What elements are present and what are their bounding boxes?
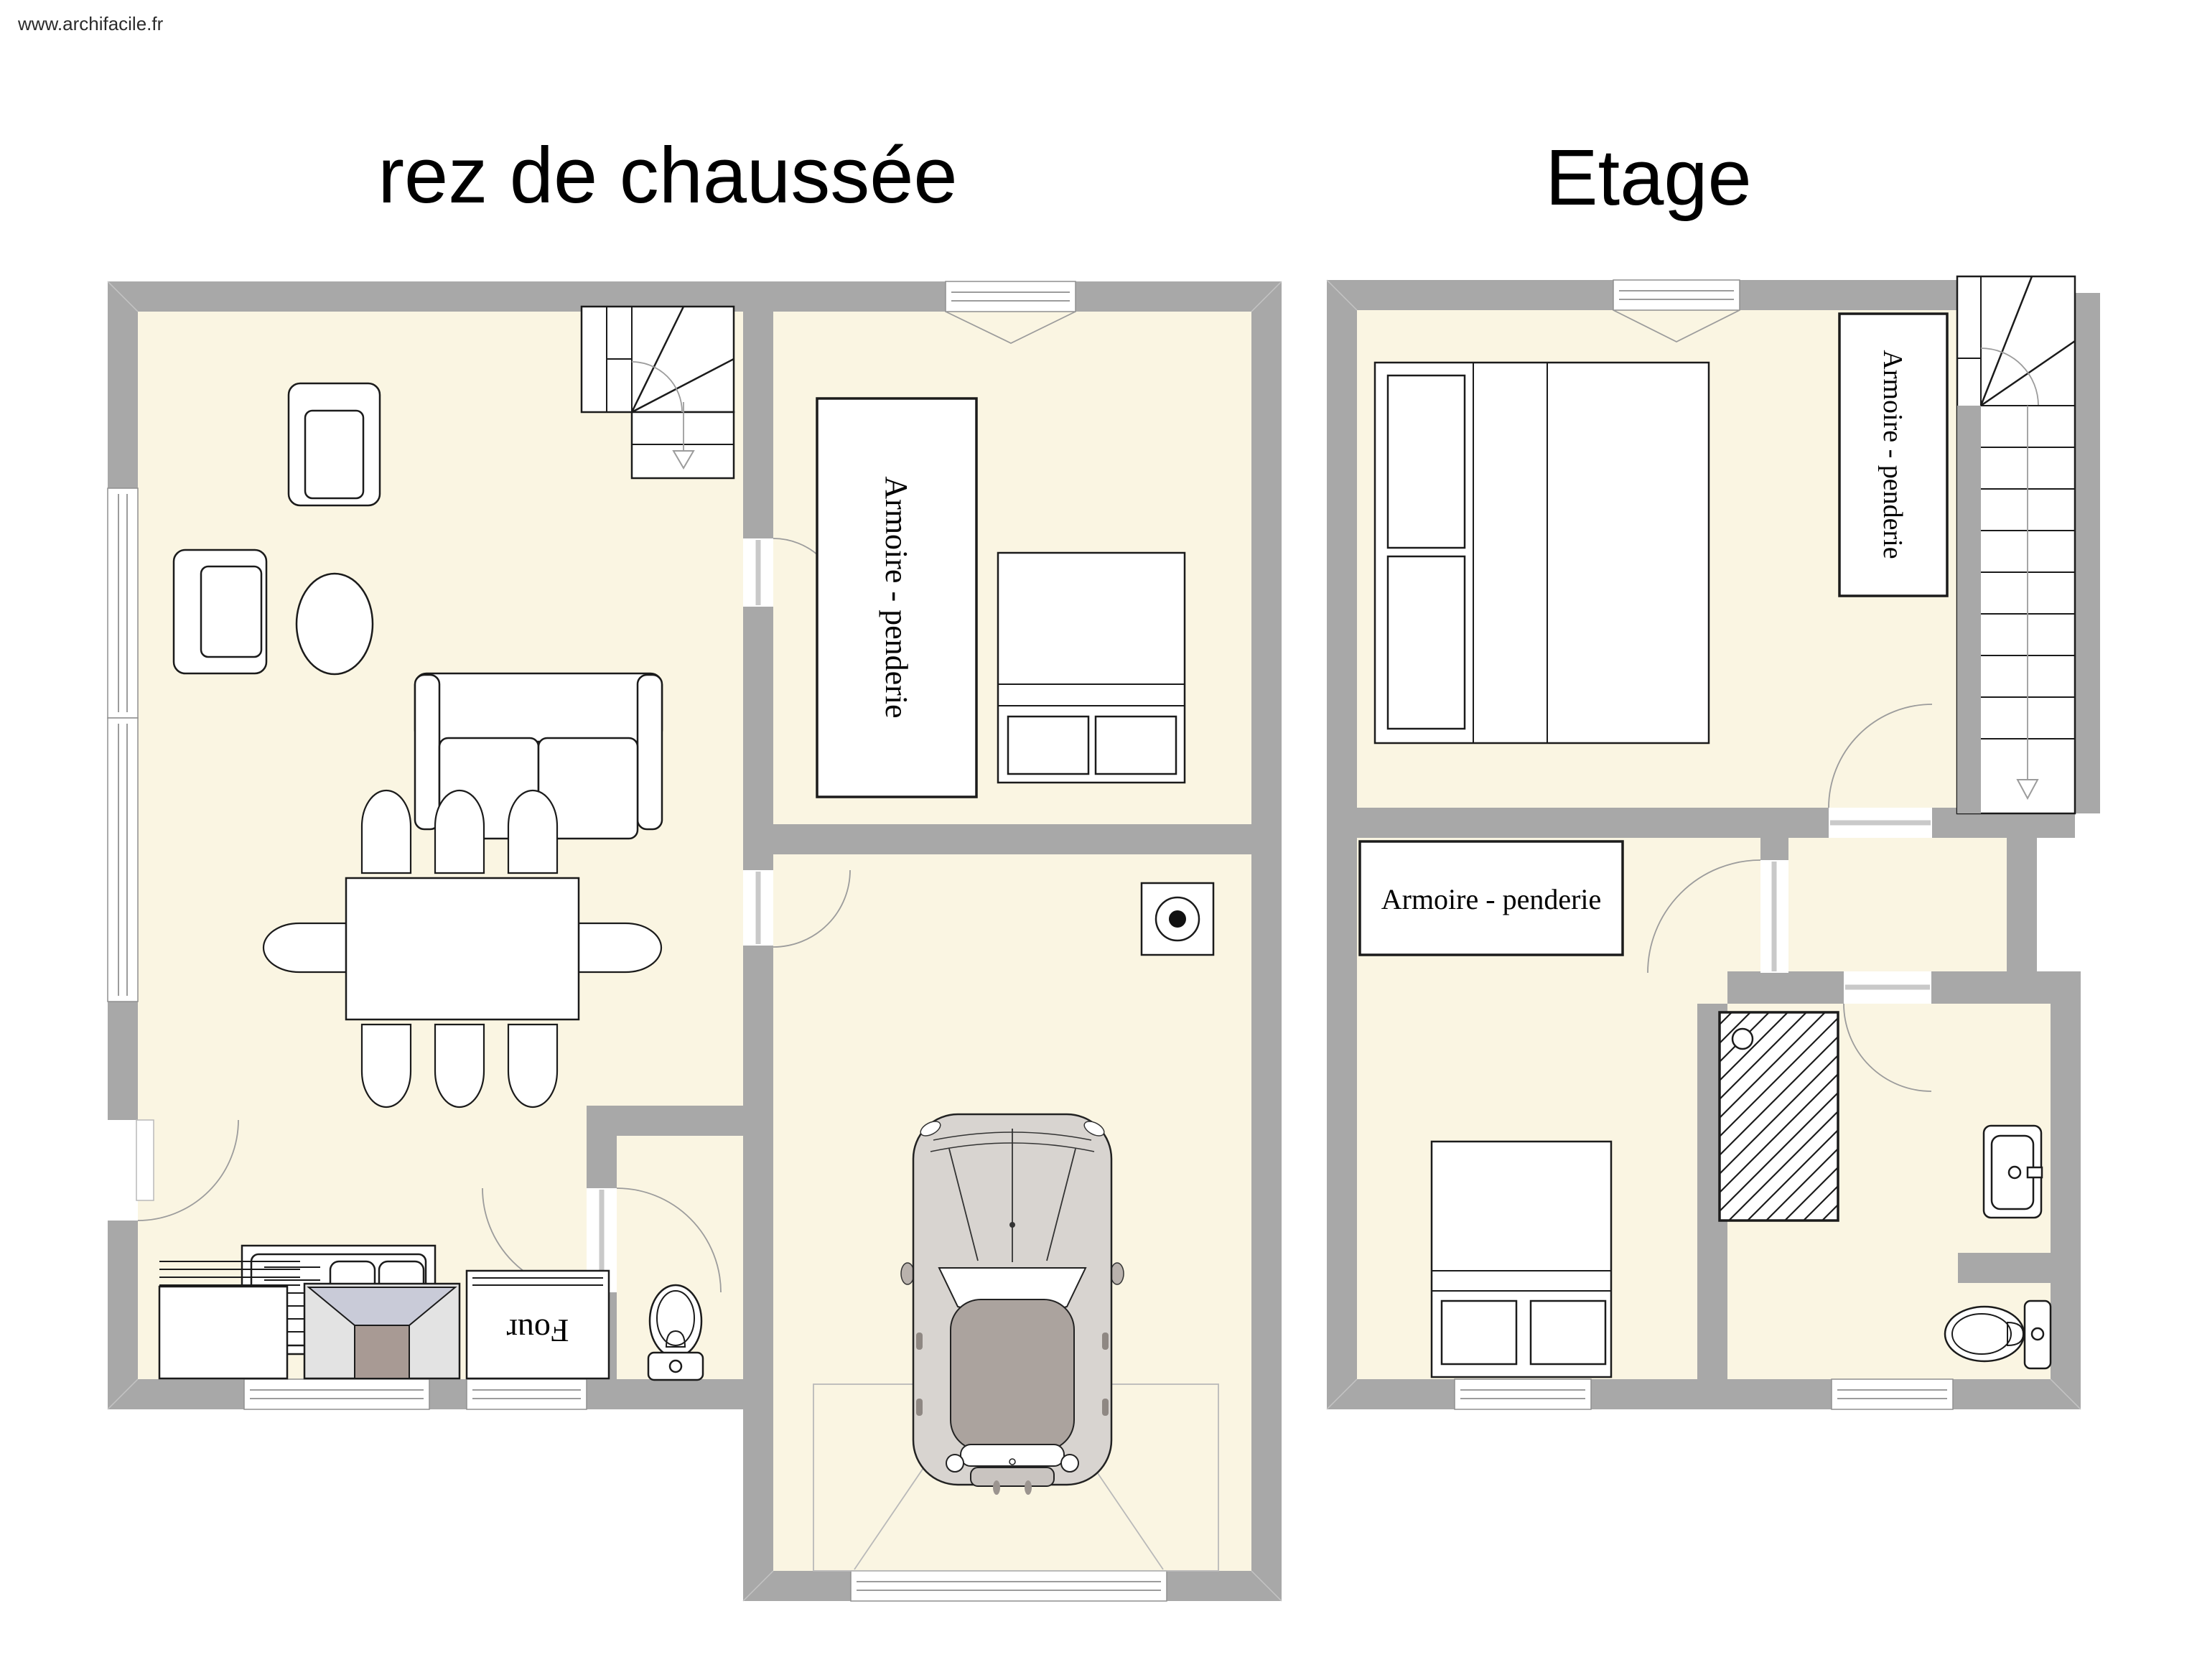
stove <box>304 1284 460 1378</box>
oven-label: Four <box>507 1312 569 1349</box>
dining-chair <box>435 790 484 873</box>
window-left-upper <box>108 488 138 718</box>
title-ground-floor: rez de chaussée <box>378 131 957 220</box>
bed-ground <box>998 553 1185 783</box>
dining-chair <box>508 1025 557 1107</box>
floorplan-canvas: www.archifacile.fr rez de chaussée Etage <box>0 0 2197 1680</box>
window-bottom-kitchen <box>244 1379 429 1409</box>
washing-machine <box>1142 883 1213 955</box>
toilet-ground <box>648 1285 703 1380</box>
bed-upper-1 <box>1375 363 1709 743</box>
wardrobe-upper-right-label: Armoire - penderie <box>1878 350 1908 559</box>
window-left-lower <box>108 718 138 1002</box>
staircase-upper <box>1957 276 2075 813</box>
floorplan-drawing: www.archifacile.fr rez de chaussée Etage <box>0 0 2197 1680</box>
watermark: www.archifacile.fr <box>17 13 164 34</box>
shower <box>1720 1012 1838 1221</box>
window-upper-bottom-bedroom <box>1455 1379 1591 1409</box>
wardrobe-upper-left-label: Armoire - penderie <box>1381 883 1602 915</box>
oven: Four <box>467 1271 609 1378</box>
upper-floor-plan: Armoire - penderie Armoire - penderie <box>1327 276 2100 1409</box>
dining-chair <box>263 923 346 972</box>
ground-floor-plan: Four Armoire - penderie <box>108 281 1282 1601</box>
armchair-top <box>289 383 380 505</box>
wardrobe-upper-right: Armoire - penderie <box>1839 314 1947 596</box>
title-upper-floor: Etage <box>1545 134 1751 222</box>
dining-chair <box>579 923 661 972</box>
dining-chair <box>362 1025 411 1107</box>
dining-table <box>346 878 579 1019</box>
side-table <box>297 574 373 674</box>
car <box>901 1114 1124 1495</box>
washbasin <box>1984 1126 2042 1218</box>
dining-chair <box>362 790 411 873</box>
wardrobe-ground: Armoire - penderie <box>817 398 976 797</box>
window-upper-bottom-bathroom <box>1832 1379 1953 1409</box>
garage-door <box>851 1571 1167 1601</box>
window-bottom-wc <box>467 1379 587 1409</box>
armchair-left <box>174 550 266 673</box>
dining-chair <box>508 790 557 873</box>
wardrobe-ground-label: Armoire - penderie <box>879 476 914 718</box>
dining-chair <box>435 1025 484 1107</box>
wardrobe-upper-left: Armoire - penderie <box>1360 841 1623 955</box>
bed-upper-2 <box>1432 1142 1611 1377</box>
